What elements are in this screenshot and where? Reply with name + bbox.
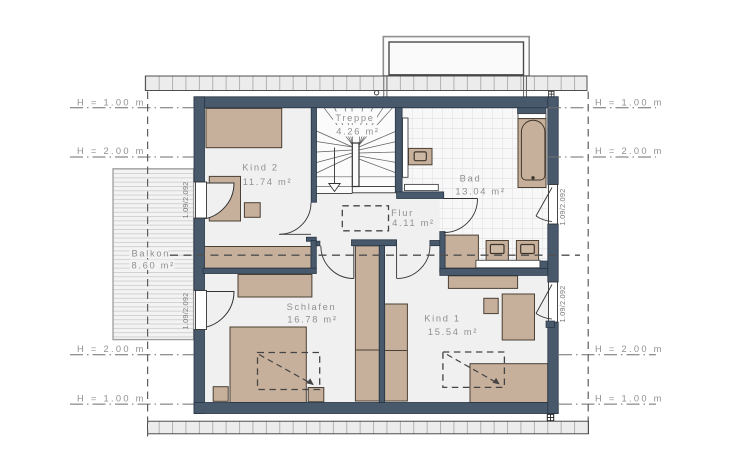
- svg-text:4.26 m²: 4.26 m²: [336, 127, 379, 137]
- svg-text:Schlafen: Schlafen: [287, 302, 337, 312]
- svg-text:15.54 m²: 15.54 m²: [428, 327, 478, 337]
- svg-text:4.11 m²: 4.11 m²: [392, 218, 435, 228]
- svg-text:Treppe: Treppe: [335, 113, 374, 123]
- svg-text:H = 2.00 m: H = 2.00 m: [595, 344, 664, 354]
- svg-text:Kind 2: Kind 2: [242, 162, 279, 172]
- svg-text:Flur: Flur: [391, 208, 414, 218]
- svg-text:13.04 m²: 13.04 m²: [455, 186, 505, 196]
- svg-text:H = 1.00 m: H = 1.00 m: [595, 98, 664, 108]
- svg-text:8.60 m²: 8.60 m²: [132, 261, 175, 271]
- svg-text:1.09/2.092: 1.09/2.092: [558, 189, 567, 226]
- svg-text:1.09/2.092: 1.09/2.092: [181, 293, 190, 330]
- svg-text:H = 1.00 m: H = 1.00 m: [77, 393, 146, 403]
- svg-text:H = 1.00 m: H = 1.00 m: [595, 393, 664, 403]
- svg-text:1.09/2.092: 1.09/2.092: [181, 182, 190, 219]
- svg-text:H = 2.00 m: H = 2.00 m: [595, 146, 664, 156]
- svg-text:Balkon: Balkon: [132, 248, 171, 258]
- svg-text:H = 2.00 m: H = 2.00 m: [77, 146, 146, 156]
- svg-text:Bad: Bad: [460, 174, 482, 184]
- svg-text:11.74 m²: 11.74 m²: [243, 177, 293, 187]
- svg-text:H = 2.00 m: H = 2.00 m: [77, 344, 146, 354]
- svg-text:1.09/2.092: 1.09/2.092: [558, 286, 567, 323]
- svg-text:H = 1.00 m: H = 1.00 m: [77, 98, 146, 108]
- svg-text:16.78 m²: 16.78 m²: [287, 314, 337, 324]
- svg-text:Kind 1: Kind 1: [424, 314, 461, 324]
